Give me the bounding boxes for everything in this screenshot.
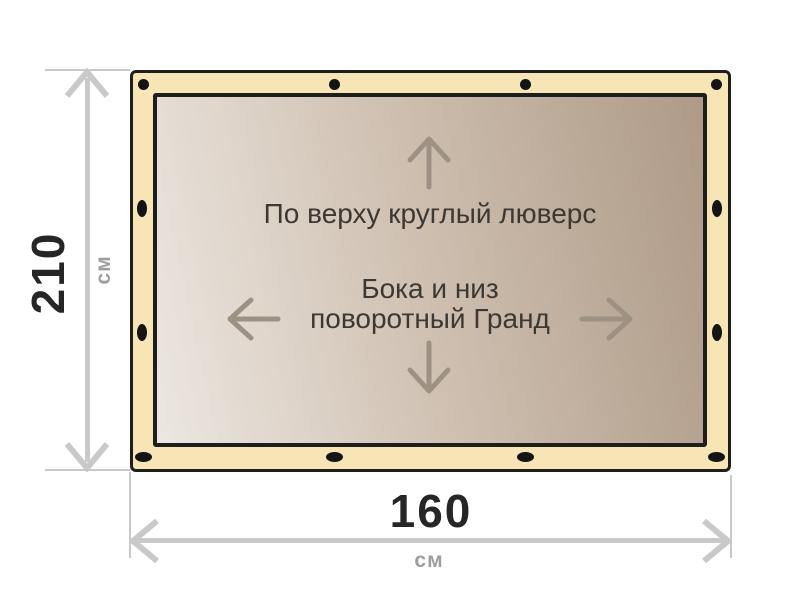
width-unit: см (399, 549, 459, 573)
grommet-circle-icon (711, 79, 722, 90)
grommet-circle-icon (138, 79, 149, 90)
sides-bottom-note: Бока и низ поворотный Гранд (157, 274, 703, 334)
top-edge-note: По верху круглый люверс (157, 198, 703, 230)
grommet-horizontal-oval-icon (517, 452, 534, 462)
sides-bottom-note-line2: поворотный Гранд (157, 304, 703, 334)
arrow-down-icon (405, 339, 453, 397)
grommet-horizontal-oval-icon (708, 452, 725, 462)
dimension-arrow-right-icon (700, 517, 732, 565)
tarp-print-area: По верху круглый люверс Бока и низ повор… (153, 93, 707, 447)
product-dimension-diagram: По верху круглый люверс Бока и низ повор… (0, 0, 800, 600)
width-value: 160 (331, 485, 531, 537)
dimension-arrow-up-icon (63, 68, 111, 100)
grommet-circle-icon (520, 79, 531, 90)
grommet-horizontal-oval-icon (326, 452, 343, 462)
grommet-vertical-oval-icon (137, 200, 147, 217)
dimension-arrow-down-icon (63, 440, 111, 472)
width-dimension-line (138, 538, 726, 543)
height-unit: см (92, 240, 116, 300)
height-dimension-line (85, 78, 90, 462)
arrow-up-icon (405, 133, 453, 191)
grommet-circle-icon (329, 79, 340, 90)
height-value: 210 (20, 203, 76, 343)
grommet-vertical-oval-icon (712, 200, 722, 217)
sides-bottom-note-line1: Бока и низ (157, 274, 703, 304)
tarp-outline: По верху круглый люверс Бока и низ повор… (130, 70, 731, 472)
grommet-vertical-oval-icon (712, 324, 722, 341)
grommet-vertical-oval-icon (137, 324, 147, 341)
dimension-arrow-left-icon (129, 517, 161, 565)
grommet-horizontal-oval-icon (135, 452, 152, 462)
